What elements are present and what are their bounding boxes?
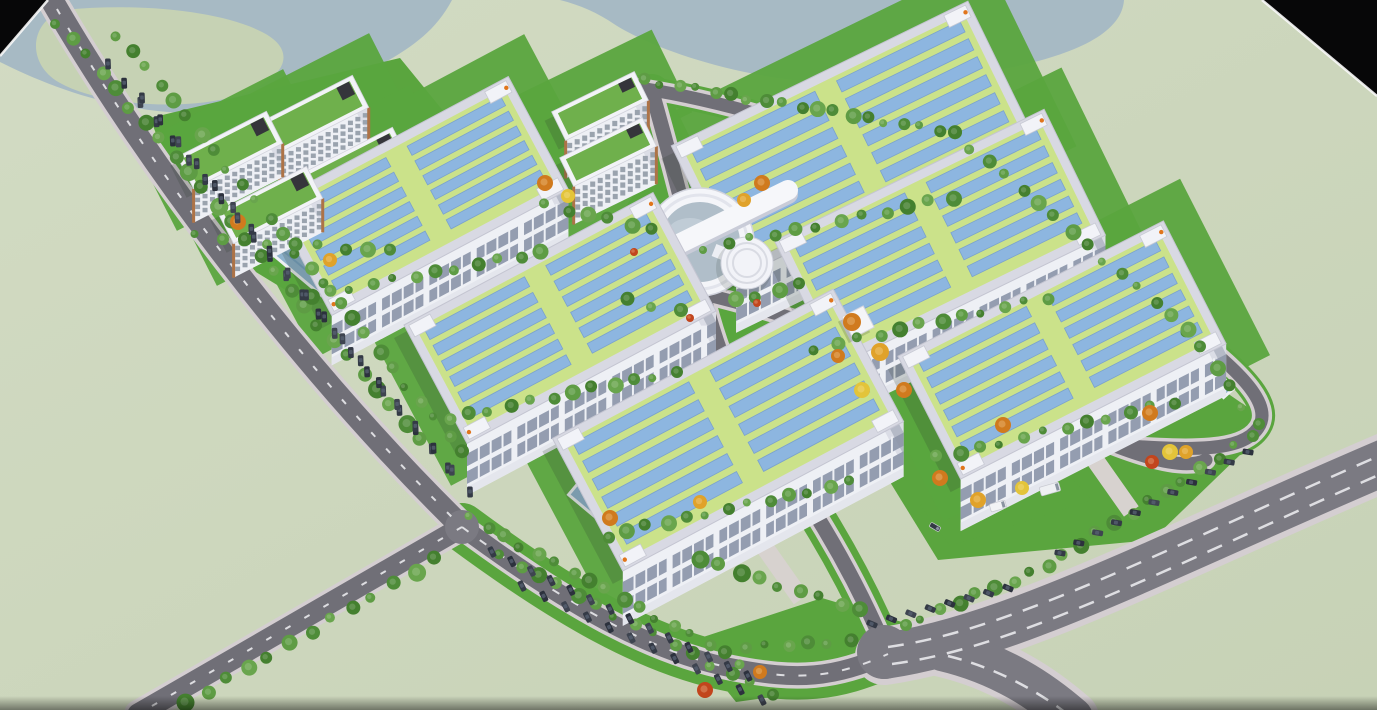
window-cell	[225, 190, 230, 194]
window-cell	[295, 229, 300, 233]
window-cell	[217, 179, 222, 183]
window-cell	[613, 171, 618, 176]
window-cell	[295, 222, 300, 226]
road-junction	[857, 625, 911, 679]
window-cell	[255, 167, 260, 171]
window-cell	[348, 128, 353, 132]
window-cell	[269, 153, 274, 157]
window-cell	[620, 190, 625, 195]
window-cell	[309, 215, 314, 219]
window-cell	[296, 161, 301, 165]
window-cell	[195, 205, 200, 209]
window-cell	[240, 168, 245, 172]
window-cell	[235, 267, 240, 271]
window-cell	[309, 222, 314, 226]
window-cell	[326, 153, 331, 157]
window-cell	[635, 110, 640, 115]
window-cell	[642, 106, 647, 111]
window-cell	[250, 245, 255, 249]
window-cell	[280, 223, 285, 227]
window-cell	[318, 150, 323, 154]
window-cell	[627, 114, 632, 119]
window-cell	[243, 256, 248, 260]
roof-access-marker	[963, 10, 967, 14]
window-cell	[650, 160, 655, 165]
parked-car	[364, 366, 370, 377]
window-cell	[355, 124, 360, 128]
window-cell	[620, 175, 625, 180]
industrial-park-aerial-rendering	[0, 0, 1377, 710]
window-cell	[590, 182, 595, 187]
window-cell	[232, 186, 237, 190]
window-cell	[605, 174, 610, 179]
roof-access-marker	[467, 430, 471, 434]
window-cell	[628, 163, 633, 168]
parked-car	[431, 443, 437, 454]
window-cell	[265, 231, 270, 235]
window-cell	[598, 201, 603, 206]
window-cell	[235, 260, 240, 264]
window-cell	[272, 227, 277, 231]
window-cell	[225, 176, 230, 180]
window-cell	[333, 128, 338, 132]
window-cell	[309, 229, 314, 233]
window-cell	[628, 171, 633, 176]
parked-car	[121, 78, 127, 89]
window-cell	[195, 198, 200, 202]
parked-car	[467, 486, 473, 497]
window-cell	[232, 172, 237, 176]
window-cell	[203, 201, 208, 205]
window-cell	[635, 160, 640, 165]
window-cell	[317, 204, 322, 208]
window-cell	[289, 158, 294, 162]
parked-car	[105, 58, 111, 69]
window-cell	[217, 186, 222, 190]
window-cell	[597, 128, 602, 133]
window-cell	[612, 121, 617, 126]
window-cell	[620, 182, 625, 187]
parked-car	[139, 92, 145, 103]
corner-trim	[281, 143, 284, 177]
window-cell	[575, 197, 580, 202]
window-cell	[590, 197, 595, 202]
roof-access-marker	[1159, 230, 1163, 234]
window-cell	[355, 131, 360, 135]
window-cell	[302, 233, 307, 237]
parked-car	[235, 212, 241, 223]
parked-car	[348, 347, 354, 358]
window-cell	[262, 164, 267, 168]
window-cell	[243, 263, 248, 267]
window-cell	[348, 142, 353, 146]
window-cell	[318, 136, 323, 140]
window-cell	[363, 127, 368, 131]
parked-car	[376, 377, 382, 388]
window-cell	[309, 208, 314, 212]
parked-car	[170, 135, 176, 146]
window-cell	[341, 124, 346, 128]
window-cell	[243, 249, 248, 253]
window-cell	[583, 185, 588, 190]
parked-car	[202, 174, 208, 185]
window-cell	[269, 174, 274, 178]
parked-car	[303, 289, 309, 300]
window-cell	[613, 178, 618, 183]
roof-access-marker	[829, 298, 833, 302]
window-cell	[635, 183, 640, 188]
window-cell	[318, 143, 323, 147]
window-cell	[255, 160, 260, 164]
window-cell	[296, 154, 301, 158]
window-cell	[567, 143, 572, 148]
window-cell	[341, 138, 346, 142]
parked-car	[248, 224, 254, 235]
window-cell	[635, 167, 640, 172]
bottom-vignette	[0, 696, 1377, 710]
window-cell	[257, 241, 262, 245]
parked-car	[230, 202, 236, 213]
window-cell	[262, 157, 267, 161]
corner-trim	[367, 107, 370, 141]
window-cell	[355, 117, 360, 121]
aerial-render-viewport	[0, 0, 1377, 710]
window-cell	[303, 157, 308, 161]
window-cell	[277, 149, 282, 153]
window-cell	[620, 117, 625, 122]
parked-car	[218, 193, 224, 204]
window-cell	[303, 143, 308, 147]
window-cell	[650, 168, 655, 173]
window-cell	[203, 194, 208, 198]
parked-car	[394, 399, 400, 410]
window-cell	[620, 167, 625, 172]
window-cell	[598, 178, 603, 183]
window-cell	[317, 225, 322, 229]
window-cell	[269, 160, 274, 164]
window-cell	[235, 246, 240, 250]
window-cell	[333, 142, 338, 146]
window-cell	[605, 198, 610, 203]
parked-car	[212, 180, 218, 191]
parked-car	[358, 355, 364, 366]
window-cell	[302, 226, 307, 230]
parked-car	[285, 268, 291, 279]
window-cell	[195, 212, 200, 216]
window-cell	[232, 193, 237, 197]
window-cell	[583, 201, 588, 206]
window-cell	[250, 259, 255, 263]
window-cell	[277, 163, 282, 167]
window-cell	[295, 215, 300, 219]
window-cell	[262, 171, 267, 175]
window-cell	[326, 132, 331, 136]
window-cell	[289, 151, 294, 155]
window-cell	[232, 179, 237, 183]
window-cell	[590, 189, 595, 194]
window-cell	[277, 156, 282, 160]
window-cell	[643, 179, 648, 184]
parked-car	[449, 465, 455, 476]
window-cell	[257, 234, 262, 238]
window-cell	[262, 178, 267, 182]
parked-car	[315, 308, 321, 319]
parked-car	[321, 311, 327, 322]
window-cell	[650, 152, 655, 157]
window-cell	[255, 174, 260, 178]
window-cell	[613, 186, 618, 191]
window-cell	[225, 183, 230, 187]
window-cell	[590, 132, 595, 137]
window-cell	[598, 193, 603, 198]
window-cell	[311, 154, 316, 158]
roof-access-marker	[649, 202, 653, 206]
window-cell	[326, 146, 331, 150]
window-cell	[613, 194, 618, 199]
window-cell	[605, 125, 610, 130]
parked-car	[186, 155, 192, 166]
window-cell	[575, 212, 580, 217]
window-cell	[643, 164, 648, 169]
window-cell	[280, 244, 285, 248]
window-cell	[296, 147, 301, 151]
window-cell	[575, 204, 580, 209]
window-cell	[277, 170, 282, 174]
window-cell	[628, 179, 633, 184]
window-cell	[575, 189, 580, 194]
parked-car	[332, 328, 338, 339]
window-cell	[272, 248, 277, 252]
window-cell	[247, 164, 252, 168]
window-cell	[583, 193, 588, 198]
roof-access-marker	[504, 86, 508, 90]
corner-trim	[192, 189, 195, 223]
window-cell	[235, 253, 240, 257]
window-cell	[311, 140, 316, 144]
window-cell	[643, 171, 648, 176]
window-cell	[326, 139, 331, 143]
window-cell	[650, 176, 655, 181]
window-cell	[250, 252, 255, 256]
window-cell	[643, 156, 648, 161]
window-cell	[341, 145, 346, 149]
window-cell	[355, 138, 360, 142]
window-cell	[269, 167, 274, 171]
window-cell	[605, 182, 610, 187]
window-cell	[318, 157, 323, 161]
roof-access-marker	[961, 466, 965, 470]
window-cell	[287, 219, 292, 223]
window-cell	[303, 150, 308, 154]
window-cell	[289, 165, 294, 169]
window-cell	[255, 181, 260, 185]
roof-access-marker	[1040, 118, 1044, 122]
window-cell	[341, 131, 346, 135]
window-cell	[575, 139, 580, 144]
window-cell	[363, 113, 368, 117]
window-cell	[333, 149, 338, 153]
corner-trim	[655, 146, 658, 184]
window-cell	[598, 186, 603, 191]
window-cell	[363, 120, 368, 124]
window-cell	[311, 160, 316, 164]
window-cell	[333, 135, 338, 139]
window-cell	[582, 136, 587, 141]
window-cell	[605, 190, 610, 195]
parked-car	[194, 158, 200, 169]
window-cell	[628, 187, 633, 192]
window-cell	[363, 134, 368, 138]
parked-car	[339, 333, 345, 344]
window-cell	[317, 211, 322, 215]
corner-trim	[232, 244, 235, 278]
window-cell	[317, 218, 322, 222]
window-cell	[635, 175, 640, 180]
roof-access-marker	[623, 557, 627, 561]
window-cell	[272, 241, 277, 245]
parked-car	[157, 114, 163, 125]
window-cell	[302, 219, 307, 223]
corner-trim	[321, 198, 324, 232]
window-cell	[203, 208, 208, 212]
window-cell	[348, 121, 353, 125]
parked-car	[175, 136, 181, 147]
window-cell	[348, 135, 353, 139]
parked-car	[412, 421, 418, 432]
window-cell	[247, 171, 252, 175]
parked-car	[267, 246, 273, 257]
window-cell	[302, 212, 307, 216]
window-cell	[311, 147, 316, 151]
